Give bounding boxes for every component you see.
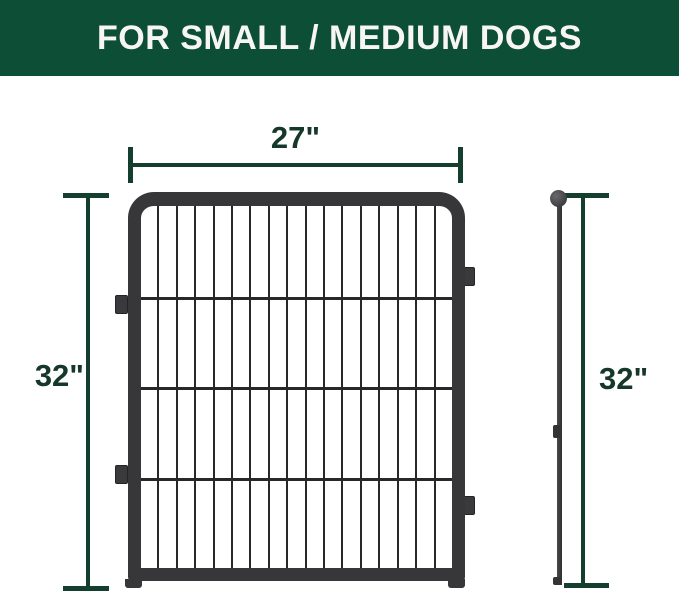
panel-connector-tab-left-bottom (115, 465, 128, 484)
header-banner: FOR SMALL / MEDIUM DOGS (0, 0, 679, 76)
height-dimension-label-left: 32" (14, 358, 84, 394)
width-dimension-line (130, 163, 461, 167)
height-dimension-line-left (86, 195, 90, 588)
panel-connector-tab-left-top (115, 295, 128, 314)
connector-pole-mid-joint (553, 425, 562, 438)
width-dimension-label: 27" (130, 120, 461, 156)
height-dimension-left-cap-top (63, 193, 109, 198)
banner-title: FOR SMALL / MEDIUM DOGS (97, 19, 582, 58)
height-dimension-label-right: 32" (599, 361, 669, 397)
product-dimension-diagram: FOR SMALL / MEDIUM DOGS 27" 32" 32" (0, 0, 679, 593)
height-dimension-right-cap-top (564, 193, 609, 198)
width-dimension-cap-right (458, 147, 463, 183)
panel-foot-left (125, 579, 142, 588)
connector-pole-ball-top (550, 190, 567, 207)
connector-pole (557, 198, 562, 585)
panel-foot-right (448, 579, 465, 588)
connector-pole-foot (553, 577, 562, 585)
panel-frame (128, 192, 465, 581)
height-dimension-line-right (581, 195, 585, 585)
height-dimension-left-cap-bottom (63, 586, 109, 591)
width-dimension-cap-left (128, 147, 133, 183)
height-dimension-right-cap-bottom (564, 583, 609, 588)
